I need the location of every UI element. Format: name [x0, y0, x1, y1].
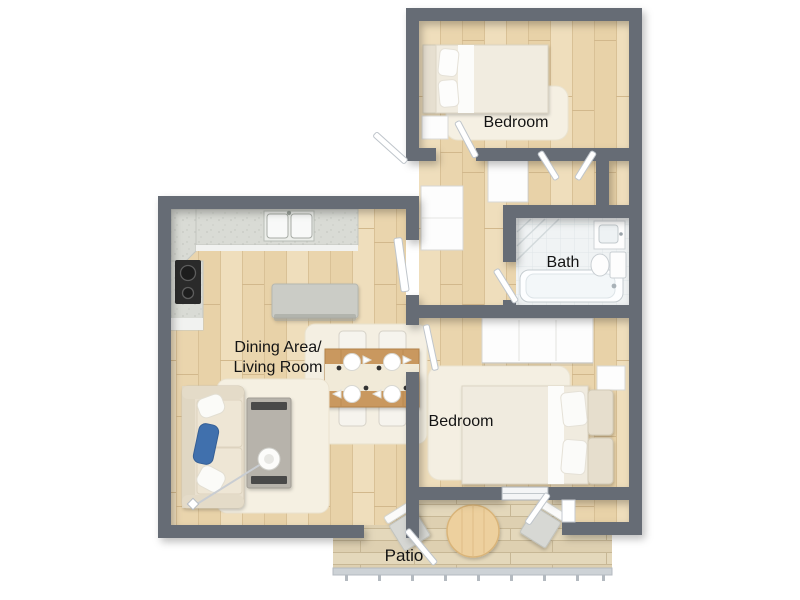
wall: [406, 8, 642, 21]
pillow: [560, 391, 587, 427]
pillow: [438, 79, 459, 108]
wall: [629, 8, 642, 535]
coffee-table-top: [247, 398, 291, 488]
wall: [503, 205, 516, 262]
double-sink: [264, 211, 314, 241]
tub-faucet: [612, 284, 617, 289]
vanity-sink: [594, 221, 625, 249]
plate: [384, 386, 401, 403]
room-label-bedroom-top: Bedroom: [484, 114, 549, 131]
headboard: [588, 438, 613, 484]
bed: [423, 45, 548, 113]
table-bar: [251, 476, 287, 484]
wall: [548, 487, 642, 500]
plate: [384, 354, 401, 371]
floorplan-svg: Bedroom Bath Dining Area/ Living Room Be…: [0, 0, 800, 600]
kitchen-counter-corner: [171, 209, 196, 261]
bathtub: [520, 270, 623, 302]
island-front: [274, 314, 356, 321]
living-area-furniture: [182, 379, 329, 513]
nightstand: [422, 116, 448, 139]
room-label-living-line1: Dining Area/: [234, 339, 322, 356]
wardrobe-shadow: [482, 362, 593, 366]
cup: [364, 386, 369, 391]
alcove-door: [562, 500, 575, 522]
wall: [406, 295, 419, 325]
patio-table: [447, 504, 499, 558]
burner: [183, 288, 194, 299]
wardrobe-body: [482, 318, 593, 363]
wall: [406, 372, 419, 538]
sink-basin: [291, 214, 312, 238]
wall: [419, 305, 629, 318]
plate: [344, 386, 361, 403]
table-bar: [251, 402, 287, 410]
counter-edge: [196, 245, 358, 251]
coffee-table: [247, 398, 291, 488]
patio-railing: [333, 568, 612, 575]
wall: [158, 196, 171, 538]
sheet-fold: [458, 45, 474, 113]
cup: [337, 366, 342, 371]
toilet-tank: [610, 252, 626, 278]
pillow: [438, 48, 460, 77]
sofa-back: [182, 386, 195, 508]
wall: [406, 148, 436, 161]
burner: [181, 266, 196, 281]
room-label-bedroom-bottom: Bedroom: [429, 413, 494, 430]
plate: [344, 354, 361, 371]
nightstand: [597, 366, 625, 390]
sofa: [182, 386, 244, 508]
room-label-patio: Patio: [385, 546, 424, 565]
toilet-bowl: [591, 254, 609, 276]
wardrobe: [482, 318, 593, 366]
wall: [596, 148, 609, 205]
kitchen-island: [272, 284, 358, 321]
cooktop: [175, 260, 201, 304]
room-label-living-line2: Living Room: [234, 359, 323, 376]
pillow: [561, 439, 588, 475]
wall: [158, 525, 364, 538]
headboard: [423, 45, 436, 113]
sink-basin: [267, 214, 288, 238]
wall: [406, 487, 502, 500]
counter-endcap: [171, 318, 203, 330]
floorplan-canvas: Bedroom Bath Dining Area/ Living Room Be…: [0, 0, 800, 600]
wall: [158, 196, 406, 209]
cup: [377, 366, 382, 371]
sink-faucet: [287, 211, 291, 215]
wall: [406, 196, 419, 240]
island-top: [272, 284, 358, 318]
wall: [562, 522, 642, 535]
room-label-bath: Bath: [547, 254, 580, 271]
wall: [503, 205, 629, 218]
wall: [406, 8, 419, 160]
headboard: [588, 390, 613, 435]
lamp-shade-inner: [264, 454, 274, 464]
sink-basin: [599, 225, 618, 243]
tub-inner: [526, 274, 615, 298]
bed: [462, 386, 613, 484]
sink-faucet: [619, 232, 623, 236]
